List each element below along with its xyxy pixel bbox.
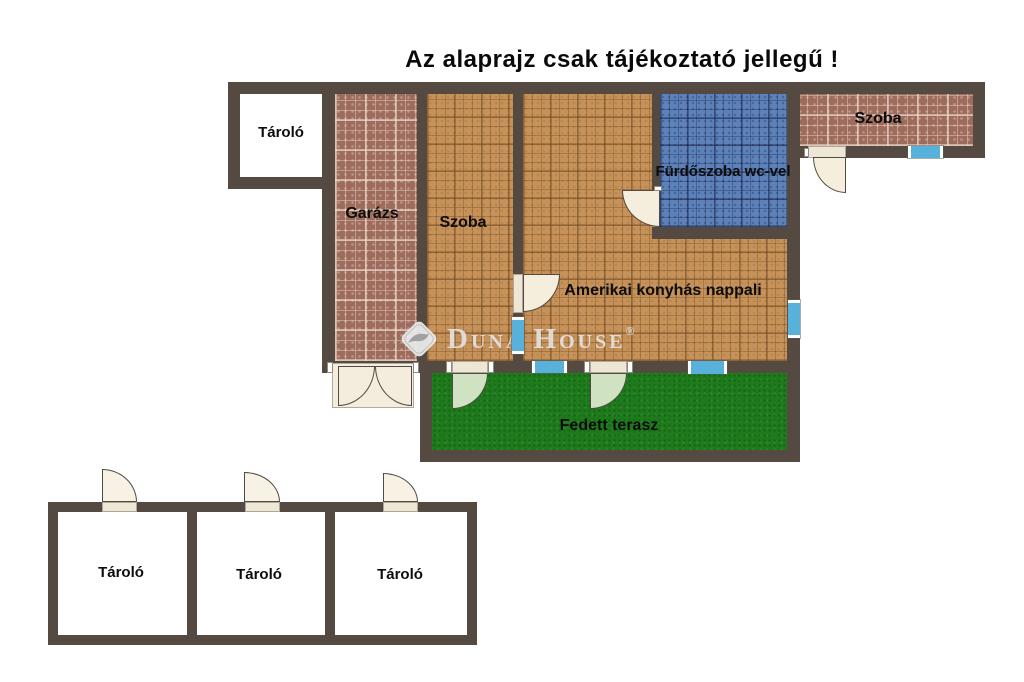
room-label-storage-1: Tároló: [61, 564, 181, 581]
room-label-living-room: Amerikai konyhás nappali: [513, 282, 813, 300]
door-jamb-terrace-1-right: [488, 361, 494, 373]
room-label-garage: Garázs: [322, 205, 422, 223]
room-label-terrace: Fedett terasz: [509, 417, 709, 435]
door-jamb-terrace-2-left: [584, 361, 590, 373]
wall-storage-divider-2: [325, 512, 335, 635]
door-jamb-bathroom: [654, 186, 662, 191]
doorway-storage-2: [245, 502, 280, 512]
wall-storage-tl-bottom: [228, 177, 335, 189]
door-storage-2: [244, 472, 280, 502]
wall-right: [787, 82, 800, 462]
window-terrace-wall-1: [532, 361, 567, 373]
door-jamb-room-right: [804, 148, 809, 157]
wall-top: [228, 82, 985, 94]
doorway-terrace-1: [452, 361, 488, 373]
room-label-room-right: Szoba: [828, 110, 928, 128]
door-jamb-garage-left: [327, 362, 333, 373]
wall-storage-right: [467, 502, 477, 645]
window-room-living-wall: [512, 317, 524, 354]
window-terrace-wall-2: [688, 361, 727, 374]
doorway-terrace-2: [590, 361, 627, 373]
wall-bathroom-bottom: [652, 227, 800, 239]
door-storage-3: [383, 473, 418, 502]
room-label-storage-3: Tároló: [340, 566, 460, 583]
doorway-storage-1: [102, 502, 137, 512]
window-right-wall: [788, 300, 800, 338]
wall-storage-bottom: [48, 635, 477, 645]
wall-storage-left: [48, 502, 58, 645]
doorway-storage-3: [383, 502, 418, 512]
room-label-bathroom: Fürdőszoba wc-vel: [573, 163, 873, 180]
disclaimer-title: Az alaprajz csak tájékoztató jellegű !: [272, 46, 972, 74]
door-jamb-garage-right: [413, 362, 419, 373]
floor-plan: Az alaprajz csak tájékoztató jellegű ! D…: [0, 0, 1024, 682]
room-label-storage-2: Tároló: [199, 566, 319, 583]
door-jamb-terrace-1-left: [446, 361, 452, 373]
room-label-room-left: Szoba: [413, 214, 513, 232]
door-storage-1: [102, 469, 137, 502]
wall-storage-divider-1: [187, 512, 197, 635]
wall-terrace-bottom: [420, 450, 800, 462]
floor-bathroom: [660, 94, 787, 227]
wall-terrace-left: [420, 361, 432, 462]
room-label-storage-top-left: Tároló: [231, 124, 331, 141]
door-jamb-terrace-2-right: [627, 361, 633, 373]
registered-trademark-symbol: ®: [626, 324, 635, 338]
watermark-brand-text: Duna House: [447, 323, 626, 355]
duna-house-logo-icon: [394, 313, 444, 365]
window-room-right: [908, 146, 943, 158]
watermark-brand: Duna House®: [447, 323, 635, 356]
